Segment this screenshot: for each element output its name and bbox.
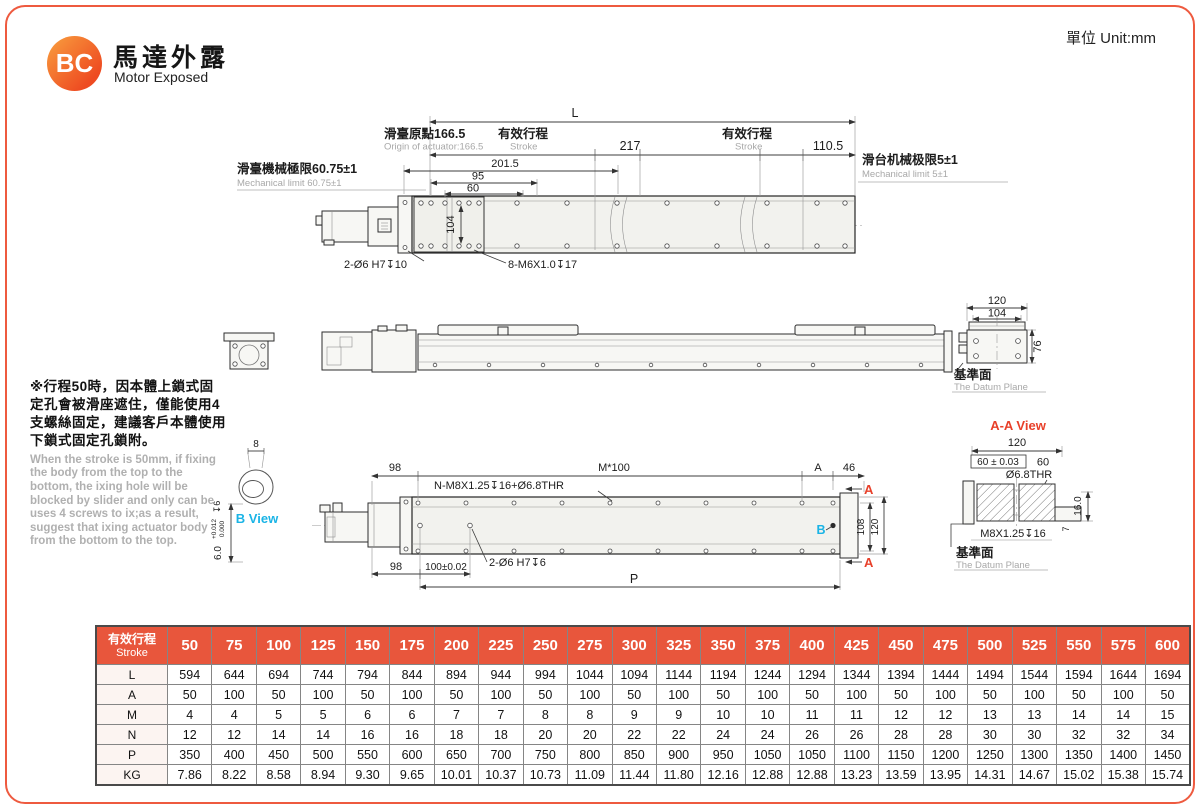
dim-L-label: L xyxy=(572,106,579,120)
stroke-header-cell: 150 xyxy=(345,626,389,665)
table-cell: 100 xyxy=(1012,685,1056,705)
table-cell: 50 xyxy=(345,685,389,705)
table-cell: 1394 xyxy=(879,665,923,685)
table-cell: 1044 xyxy=(568,665,612,685)
bottom-dim-120: 120 xyxy=(870,518,881,535)
section-mark-a-bottom: A xyxy=(864,555,874,570)
table-cell: 16 xyxy=(345,725,389,745)
table-cell: 14 xyxy=(1057,705,1101,725)
table-cell: 500 xyxy=(301,745,345,765)
table-cell: 9.30 xyxy=(345,765,389,786)
table-cell: 11.80 xyxy=(656,765,700,786)
holes-label-1: 2-Ø6 H7↧10 xyxy=(344,259,407,271)
stroke-header-cell: 575 xyxy=(1101,626,1145,665)
table-row: N121214141616181820202222242426262828303… xyxy=(96,725,1190,745)
stroke-header-en: Stroke xyxy=(97,647,167,659)
table-cell: 10 xyxy=(745,705,789,725)
holes-label-2: 8-M6X1.0↧17 xyxy=(508,259,577,271)
table-cell: 794 xyxy=(345,665,389,685)
table-cell: 12 xyxy=(879,705,923,725)
stroke-header-cell: 500 xyxy=(968,626,1012,665)
table-cell: 4 xyxy=(168,705,212,725)
bottom-holes-label-top: N-M8X1.25↧16+Ø6.8THR xyxy=(434,480,564,492)
table-cell: 10.01 xyxy=(434,765,478,786)
table-cell: 7 xyxy=(434,705,478,725)
table-cell: 100 xyxy=(479,685,523,705)
table-cell: 950 xyxy=(701,745,745,765)
table-cell: 10 xyxy=(701,705,745,725)
table-cell: 650 xyxy=(434,745,478,765)
table-cell: 1544 xyxy=(1012,665,1056,685)
table-cell: 50 xyxy=(1057,685,1101,705)
stroke-header-cell: 525 xyxy=(1012,626,1056,665)
table-cell: 12 xyxy=(212,725,256,745)
stroke-header-cell: 350 xyxy=(701,626,745,665)
table-cell: 14 xyxy=(301,725,345,745)
stroke-header-cell: 425 xyxy=(834,626,878,665)
table-cell: 8.22 xyxy=(212,765,256,786)
table-cell: 100 xyxy=(390,685,434,705)
table-cell: 13.23 xyxy=(834,765,878,786)
aa-datum-en: The Datum Plane xyxy=(956,560,1030,571)
row-label-cell: M xyxy=(96,705,168,725)
aa-view-title: A-A View xyxy=(990,418,1047,433)
table-cell: 14 xyxy=(1101,705,1145,725)
table-cell: 644 xyxy=(212,665,256,685)
table-row: P350400450500550600650700750800850900950… xyxy=(96,745,1190,765)
table-cell: 1294 xyxy=(790,665,834,685)
table-cell: 744 xyxy=(301,665,345,685)
bview-tol-lower: 0.000 xyxy=(219,520,226,537)
mech-limit-right-en: Mechanical limit 5±1 xyxy=(862,169,948,180)
table-cell: 100 xyxy=(301,685,345,705)
dim-217-label: 217 xyxy=(620,139,641,153)
bottom-holes-label-mid: 2-Ø6 H7↧6 xyxy=(489,557,546,569)
table-cell: 32 xyxy=(1101,725,1145,745)
table-cell: 50 xyxy=(612,685,656,705)
row-label-cell: L xyxy=(96,665,168,685)
b-view-drawing: 8 B View 6.0 +0.012 0.000 ↧6 xyxy=(211,439,279,562)
stroke-header-cell: 125 xyxy=(301,626,345,665)
dim-95-label: 95 xyxy=(472,171,484,183)
table-cell: 894 xyxy=(434,665,478,685)
bview-tol-main: 6.0 xyxy=(213,546,224,560)
aa-dim-thr: Ø6.8THR xyxy=(1006,469,1053,481)
table-cell: 10.37 xyxy=(479,765,523,786)
table-cell: 1194 xyxy=(701,665,745,685)
bview-dim-8: 8 xyxy=(253,439,259,450)
table-cell: 18 xyxy=(434,725,478,745)
side-view-drawing xyxy=(224,325,952,372)
table-cell: 1050 xyxy=(745,745,789,765)
table-cell: 12 xyxy=(168,725,212,745)
aa-dim-120: 120 xyxy=(1008,437,1026,449)
table-cell: 1244 xyxy=(745,665,789,685)
technical-drawing: L 滑臺原點166.5 Origin of actuator:166.5 有效行… xyxy=(0,0,1200,625)
table-cell: 15 xyxy=(1145,705,1190,725)
table-cell: 50 xyxy=(434,685,478,705)
stroke-header-cell-label: 有效行程 Stroke xyxy=(96,626,168,665)
table-cell: 1350 xyxy=(1057,745,1101,765)
bottom-dim-98-top: 98 xyxy=(389,462,401,474)
table-cell: 694 xyxy=(256,665,300,685)
bottom-dim-46: 46 xyxy=(843,462,855,474)
table-cell: 100 xyxy=(923,685,967,705)
table-cell: 1150 xyxy=(879,745,923,765)
dim-origin-en: Origin of actuator:166.5 xyxy=(384,142,483,153)
table-cell: 5 xyxy=(256,705,300,725)
table-cell: 13.95 xyxy=(923,765,967,786)
table-cell: 100 xyxy=(656,685,700,705)
table-cell: 700 xyxy=(479,745,523,765)
row-label-cell: KG xyxy=(96,765,168,786)
table-cell: 8 xyxy=(523,705,567,725)
section-dim-76: 76 xyxy=(1032,340,1044,352)
top-view-drawing: L 滑臺原點166.5 Origin of actuator:166.5 有效行… xyxy=(237,106,1008,271)
table-cell: 50 xyxy=(256,685,300,705)
table-cell: 16 xyxy=(390,725,434,745)
table-row: L594644694744794844894944994104410941144… xyxy=(96,665,1190,685)
detail-mark-b: B xyxy=(816,523,825,537)
table-cell: 1344 xyxy=(834,665,878,685)
bview-tol-upper: +0.012 xyxy=(211,519,218,539)
table-cell: 1694 xyxy=(1145,665,1190,685)
dim-201-5-label: 201.5 xyxy=(491,158,519,170)
dim-stroke2-zh: 有效行程 xyxy=(722,126,773,141)
table-cell: 1444 xyxy=(923,665,967,685)
table-cell: 22 xyxy=(612,725,656,745)
table-cell: 8 xyxy=(568,705,612,725)
table-cell: 13 xyxy=(1012,705,1056,725)
table-cell: 18 xyxy=(479,725,523,745)
dim-origin-zh: 滑臺原點166.5 xyxy=(384,126,465,141)
section-datum-zh: 基準面 xyxy=(953,367,992,382)
dim-104-label: 104 xyxy=(445,215,457,233)
table-cell: 1100 xyxy=(834,745,878,765)
table-cell: 350 xyxy=(168,745,212,765)
table-cell: 994 xyxy=(523,665,567,685)
section-view-drawing: 120 104 76 基準面 The Datum Plane xyxy=(952,295,1046,393)
table-row: M4455667788991010111112121313141415 xyxy=(96,705,1190,725)
table-cell: 28 xyxy=(923,725,967,745)
stroke-header-cell: 325 xyxy=(656,626,700,665)
table-cell: 15.02 xyxy=(1057,765,1101,786)
mech-limit-left-en: Mechanical limit 60.75±1 xyxy=(237,178,342,189)
table-cell: 15.74 xyxy=(1145,765,1190,786)
table-cell: 6 xyxy=(345,705,389,725)
stroke-header-cell: 475 xyxy=(923,626,967,665)
table-cell: 11 xyxy=(790,705,834,725)
table-cell: 100 xyxy=(834,685,878,705)
table-cell: 50 xyxy=(701,685,745,705)
mech-limit-left-zh: 滑臺機械極限60.75±1 xyxy=(237,161,357,176)
dim-stroke1-zh: 有效行程 xyxy=(498,126,549,141)
bview-label: B View xyxy=(236,511,279,526)
stroke-header-cell: 200 xyxy=(434,626,478,665)
table-header-row: 有效行程 Stroke 5075100125150175200225250275… xyxy=(96,626,1190,665)
stroke-header-cell: 225 xyxy=(479,626,523,665)
table-cell: 800 xyxy=(568,745,612,765)
table-cell: 9 xyxy=(656,705,700,725)
table-cell: 100 xyxy=(212,685,256,705)
stroke-header-zh: 有效行程 xyxy=(97,632,167,647)
dim-stroke1-en: Stroke xyxy=(510,142,537,153)
table-cell: 11.09 xyxy=(568,765,612,786)
table-cell: 14.31 xyxy=(968,765,1012,786)
stroke-header-cell: 250 xyxy=(523,626,567,665)
table-cell: 12.88 xyxy=(745,765,789,786)
table-cell: 26 xyxy=(790,725,834,745)
table-cell: 14 xyxy=(256,725,300,745)
row-label-cell: A xyxy=(96,685,168,705)
table-cell: 30 xyxy=(1012,725,1056,745)
table-cell: 6 xyxy=(390,705,434,725)
mech-limit-right-zh: 滑台机械极限5±1 xyxy=(862,152,958,167)
table-cell: 15.38 xyxy=(1101,765,1145,786)
table-cell: 13 xyxy=(968,705,1012,725)
table-cell: 50 xyxy=(523,685,567,705)
table-cell: 600 xyxy=(390,745,434,765)
table-cell: 9.65 xyxy=(390,765,434,786)
stroke-header-cell: 275 xyxy=(568,626,612,665)
stroke-header-cell: 375 xyxy=(745,626,789,665)
bottom-dim-108: 108 xyxy=(856,518,867,535)
stroke-header-cell: 400 xyxy=(790,626,834,665)
table-cell: 12.88 xyxy=(790,765,834,786)
table-cell: 1594 xyxy=(1057,665,1101,685)
table-cell: 1250 xyxy=(968,745,1012,765)
table-cell: 24 xyxy=(701,725,745,745)
table-cell: 100 xyxy=(745,685,789,705)
table-cell: 1450 xyxy=(1145,745,1190,765)
table-cell: 50 xyxy=(968,685,1012,705)
table-cell: 400 xyxy=(212,745,256,765)
bview-tol-depth: ↧6 xyxy=(212,501,222,514)
row-label-cell: P xyxy=(96,745,168,765)
bottom-dim-M100: M*100 xyxy=(598,462,630,474)
row-label-cell: N xyxy=(96,725,168,745)
stroke-header-cell: 300 xyxy=(612,626,656,665)
table-cell: 12.16 xyxy=(701,765,745,786)
table-cell: 1050 xyxy=(790,745,834,765)
aa-dim-60-tol: 60 ± 0.03 xyxy=(977,457,1019,468)
table-cell: 1300 xyxy=(1012,745,1056,765)
section-mark-a-top: A xyxy=(864,482,874,497)
aa-dim-60: 60 xyxy=(1037,457,1049,469)
bottom-view-drawing: 98 M*100 A 46 N-M8X1.25↧16+Ø6.8THR A A 1… xyxy=(312,462,888,590)
table-cell: 22 xyxy=(656,725,700,745)
table-cell: 9 xyxy=(612,705,656,725)
table-cell: 750 xyxy=(523,745,567,765)
table-cell: 12 xyxy=(923,705,967,725)
table-cell: 594 xyxy=(168,665,212,685)
dim-60-label: 60 xyxy=(467,183,479,195)
table-cell: 900 xyxy=(656,745,700,765)
table-cell: 14.67 xyxy=(1012,765,1056,786)
table-cell: 34 xyxy=(1145,725,1190,745)
table-cell: 30 xyxy=(968,725,1012,745)
table-cell: 20 xyxy=(523,725,567,745)
table-cell: 7 xyxy=(479,705,523,725)
aa-dim-16: 16.0 xyxy=(1073,496,1084,516)
table-row: KG7.868.228.588.949.309.6510.0110.3710.7… xyxy=(96,765,1190,786)
aa-view-drawing: A-A View 120 60 ± 0.03 60 Ø6.8THR 16.0 7… xyxy=(951,418,1093,571)
section-dim-104: 104 xyxy=(988,308,1006,320)
stroke-header-cell: 175 xyxy=(390,626,434,665)
table-cell: 1200 xyxy=(923,745,967,765)
table-cell: 28 xyxy=(879,725,923,745)
table-cell: 20 xyxy=(568,725,612,745)
table-cell: 50 xyxy=(1145,685,1190,705)
stroke-header-cell: 550 xyxy=(1057,626,1101,665)
table-cell: 26 xyxy=(834,725,878,745)
stroke-header-cell: 50 xyxy=(168,626,212,665)
table-cell: 8.58 xyxy=(256,765,300,786)
table-row: A501005010050100501005010050100501005010… xyxy=(96,685,1190,705)
table-cell: 100 xyxy=(568,685,612,705)
stroke-header-cell: 600 xyxy=(1145,626,1190,665)
bottom-dim-P: P xyxy=(630,572,638,586)
table-cell: 850 xyxy=(612,745,656,765)
table-cell: 1144 xyxy=(656,665,700,685)
table-cell: 550 xyxy=(345,745,389,765)
table-cell: 32 xyxy=(1057,725,1101,745)
table-cell: 844 xyxy=(390,665,434,685)
stroke-header-cell: 75 xyxy=(212,626,256,665)
table-cell: 100 xyxy=(1101,685,1145,705)
dim-stroke2-en: Stroke xyxy=(735,142,762,153)
table-cell: 50 xyxy=(879,685,923,705)
stroke-header-cell: 450 xyxy=(879,626,923,665)
bottom-dim-98-bottom: 98 xyxy=(390,561,402,573)
aa-dim-7: 7 xyxy=(1061,526,1071,531)
table-body: L594644694744794844894944994104410941144… xyxy=(96,665,1190,786)
table-cell: 7.86 xyxy=(168,765,212,786)
table-cell: 4 xyxy=(212,705,256,725)
bottom-dim-A: A xyxy=(814,462,822,474)
dim-110-5-label: 110.5 xyxy=(813,139,843,153)
table-cell: 11 xyxy=(834,705,878,725)
table-cell: 5 xyxy=(301,705,345,725)
table-cell: 944 xyxy=(479,665,523,685)
table-cell: 24 xyxy=(745,725,789,745)
table-cell: 1644 xyxy=(1101,665,1145,685)
table-cell: 1094 xyxy=(612,665,656,685)
section-dim-120: 120 xyxy=(988,295,1006,307)
table-cell: 8.94 xyxy=(301,765,345,786)
table-cell: 1494 xyxy=(968,665,1012,685)
table-cell: 11.44 xyxy=(612,765,656,786)
table-cell: 450 xyxy=(256,745,300,765)
section-datum-en: The Datum Plane xyxy=(954,382,1028,393)
bottom-dim-100: 100±0.02 xyxy=(425,562,467,573)
table-cell: 10.73 xyxy=(523,765,567,786)
table-cell: 50 xyxy=(790,685,834,705)
stroke-spec-table: 有效行程 Stroke 5075100125150175200225250275… xyxy=(95,625,1191,786)
table-cell: 13.59 xyxy=(879,765,923,786)
stroke-header-cell: 100 xyxy=(256,626,300,665)
table-cell: 50 xyxy=(168,685,212,705)
aa-datum-zh: 基準面 xyxy=(955,545,994,560)
table-cell: 1400 xyxy=(1101,745,1145,765)
aa-thread-label: M8X1.25↧16 xyxy=(980,528,1045,540)
